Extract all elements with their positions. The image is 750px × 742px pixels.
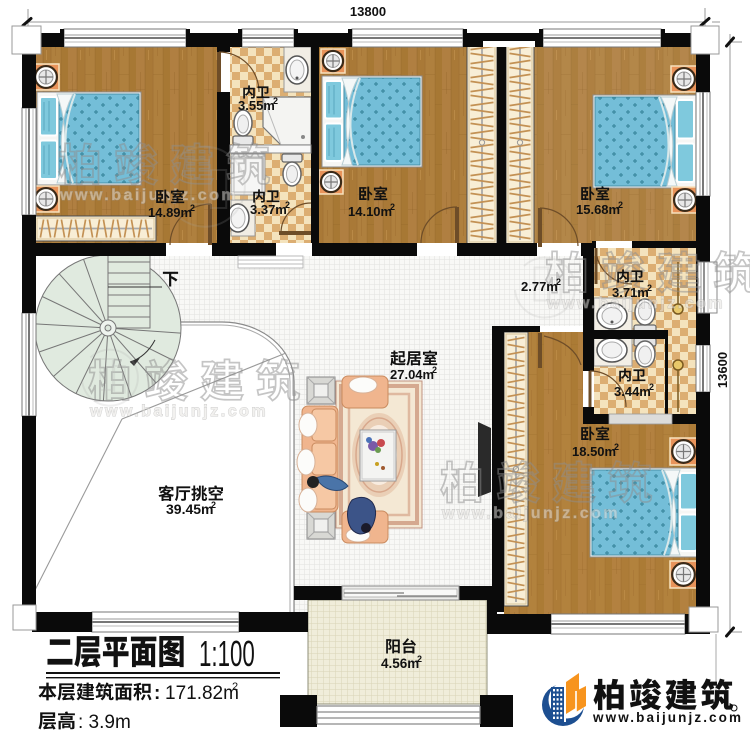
svg-text:2: 2 [618, 200, 623, 210]
svg-text:14.89m: 14.89m [148, 205, 192, 220]
svg-text:14.10m: 14.10m [348, 204, 392, 219]
svg-text:4.56m: 4.56m [381, 656, 419, 671]
svg-text:www.baijunjz.com: www.baijunjz.com [592, 710, 743, 725]
svg-text:3.71m: 3.71m [612, 285, 649, 300]
svg-text:2: 2 [649, 382, 654, 392]
svg-text:www.baijunjz.com: www.baijunjz.com [441, 505, 620, 522]
svg-text:39.45m: 39.45m [166, 501, 213, 517]
svg-text:3.37m: 3.37m [250, 202, 287, 217]
svg-text:2: 2 [647, 283, 652, 293]
svg-text:15.68m: 15.68m [576, 202, 620, 217]
svg-text:2: 2 [190, 203, 195, 213]
svg-text:2: 2 [285, 200, 290, 210]
svg-text:2: 2 [614, 442, 619, 452]
svg-text:3.55m: 3.55m [238, 98, 275, 113]
svg-text::: : [154, 683, 160, 704]
svg-text:171.82m: 171.82m [165, 683, 239, 704]
svg-text:2: 2 [273, 96, 278, 106]
svg-text:27.04m: 27.04m [390, 367, 434, 382]
svg-text:2: 2 [417, 654, 422, 664]
svg-text:2: 2 [390, 202, 395, 212]
svg-text:2: 2 [232, 681, 238, 693]
svg-text:18.50m: 18.50m [572, 444, 616, 459]
svg-text:2: 2 [211, 500, 216, 510]
svg-text:3.44m: 3.44m [614, 384, 651, 399]
svg-text:: 3.9m: : 3.9m [78, 712, 131, 733]
svg-text:2.77m: 2.77m [521, 279, 558, 294]
svg-text:2: 2 [432, 365, 437, 375]
svg-text:13600: 13600 [715, 352, 730, 388]
svg-text:2: 2 [556, 277, 561, 287]
svg-text:13800: 13800 [350, 4, 386, 19]
svg-text:1:100: 1:100 [199, 635, 255, 675]
